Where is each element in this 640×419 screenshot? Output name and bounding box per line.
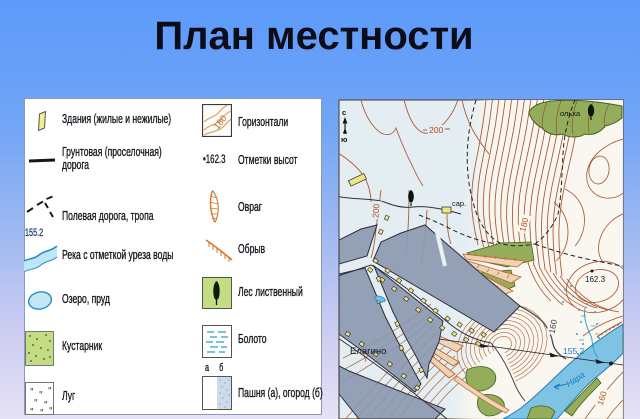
- svg-text:155.2: 155.2: [563, 346, 585, 356]
- svg-text:Елагино: Елагино: [350, 346, 386, 357]
- svg-text:162.3: 162.3: [585, 275, 606, 284]
- svg-text:ю: ю: [341, 135, 348, 144]
- svg-text:200: 200: [429, 125, 443, 135]
- svg-text:сар.: сар.: [452, 199, 466, 208]
- svg-text:200: 200: [370, 203, 381, 218]
- svg-text:ольха: ольха: [560, 109, 581, 118]
- svg-text:с: с: [342, 108, 346, 117]
